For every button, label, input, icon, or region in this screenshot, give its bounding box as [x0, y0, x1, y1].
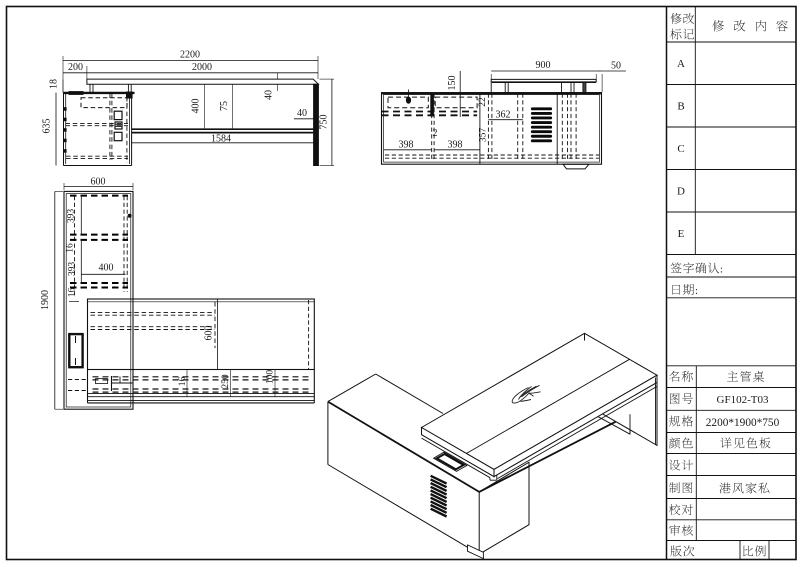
svg-text:GF102-T03: GF102-T03: [717, 394, 769, 406]
svg-text:22: 22: [478, 97, 488, 107]
svg-text:357: 357: [479, 128, 489, 143]
svg-text:200: 200: [68, 62, 83, 73]
svg-text:100: 100: [266, 370, 276, 385]
svg-text:18: 18: [49, 79, 60, 89]
svg-text:2: 2: [433, 128, 438, 139]
svg-text:1900: 1900: [40, 290, 51, 310]
svg-text:900: 900: [536, 60, 551, 71]
svg-text:398: 398: [399, 140, 414, 151]
svg-text:1584: 1584: [211, 133, 231, 144]
svg-text:2200: 2200: [180, 50, 200, 61]
svg-text:16: 16: [178, 377, 188, 387]
svg-text:150: 150: [447, 76, 458, 91]
svg-text:398: 398: [448, 140, 463, 151]
svg-text:C: C: [677, 143, 684, 155]
svg-text:16: 16: [66, 243, 76, 253]
svg-text::: :: [695, 285, 698, 297]
svg-text:50: 50: [611, 61, 621, 72]
svg-text:D: D: [677, 186, 685, 198]
svg-text:400: 400: [99, 263, 114, 274]
svg-text:E: E: [678, 228, 685, 240]
svg-text::: :: [720, 264, 723, 276]
svg-text:2200*1900*750: 2200*1900*750: [706, 417, 780, 429]
svg-text:635: 635: [42, 119, 53, 134]
svg-text:750: 750: [319, 115, 330, 130]
svg-text:75: 75: [219, 101, 230, 111]
svg-text:2000: 2000: [192, 62, 212, 73]
svg-text:40: 40: [264, 90, 275, 100]
svg-text:250: 250: [221, 374, 231, 389]
svg-text:362: 362: [496, 110, 511, 121]
svg-text:B: B: [677, 101, 684, 113]
svg-text:400: 400: [191, 99, 202, 114]
svg-text:40: 40: [297, 108, 307, 119]
svg-text:16: 16: [68, 288, 78, 298]
svg-text:393: 393: [67, 209, 77, 224]
svg-text:600: 600: [91, 176, 106, 187]
svg-text:393: 393: [68, 262, 78, 277]
svg-text:600: 600: [204, 326, 215, 341]
svg-text:A: A: [677, 58, 685, 70]
